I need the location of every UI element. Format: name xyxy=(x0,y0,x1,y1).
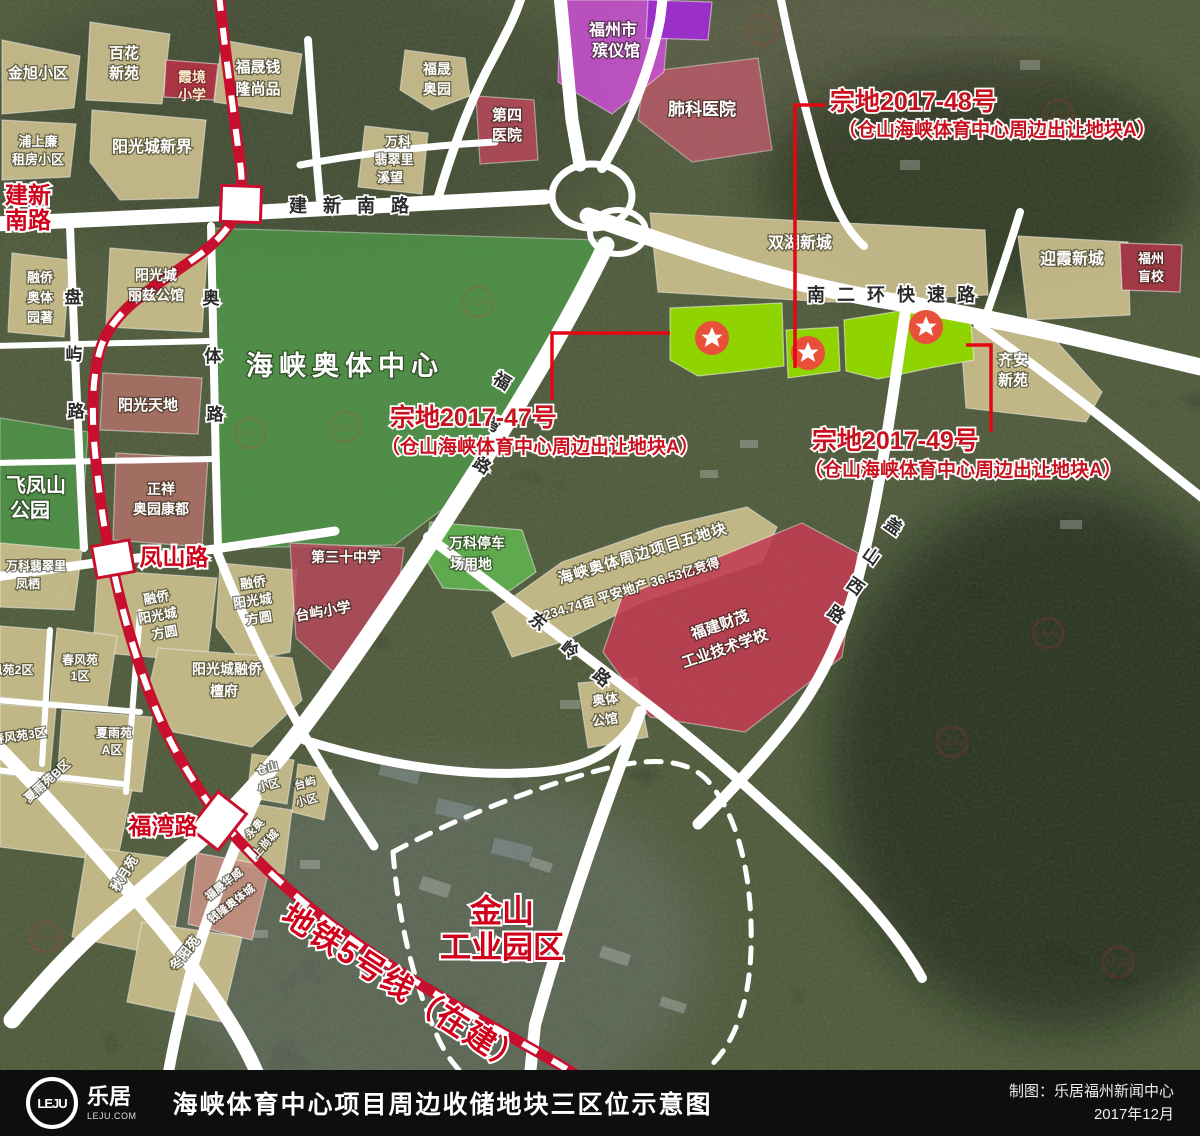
svg-text:LEJU: LEJU xyxy=(1106,957,1129,967)
svg-text:LEJU: LEJU xyxy=(750,25,773,35)
label-pushang-1: 浦上廉 xyxy=(18,134,57,149)
svg-text:LEJU: LEJU xyxy=(34,932,57,942)
label-disiyiyuan-1: 第四 xyxy=(492,106,522,124)
label-qianxinyuan-1: 齐安 xyxy=(998,351,1028,369)
road-label-jianxin-nanlu: 建新南路 xyxy=(289,195,425,216)
label-tanfu-2: 檀府 xyxy=(210,683,238,699)
label-zhengxiang-1: 正祥 xyxy=(147,481,175,497)
leju-logo-icon: LEJU xyxy=(26,1077,78,1129)
label-ygcxinjie: 阳光城新界 xyxy=(112,137,192,156)
svg-text:LEJU: LEJU xyxy=(466,297,489,307)
zongdi-49-sub: （仓山海峡体育中心周边出让地块A） xyxy=(804,458,1122,481)
label-wkfengqi-2: 凤栖 xyxy=(16,576,40,591)
brand-name: 乐居 xyxy=(87,1086,137,1108)
label-di30zhongxue: 第三十中学 xyxy=(311,549,381,565)
label-wkxiwang-1: 万科 xyxy=(384,134,411,149)
label-yangguangtiandi: 阳光天地 xyxy=(118,396,178,414)
label-wkfengqi-1: 万科翡翠里 xyxy=(5,558,66,573)
label-xiayu-a-1: 夏雨苑 xyxy=(96,725,132,740)
svg-text:LEJU: LEJU xyxy=(1046,110,1069,120)
svg-text:LEJU: LEJU xyxy=(238,428,261,438)
label-rongqiaoyuanzhu-3: 园著 xyxy=(27,310,53,325)
station-jianxin-nanlu xyxy=(220,185,261,222)
label-wkxiwang-2: 翡翠里 xyxy=(374,152,413,167)
label-baihua-2: 新苑 xyxy=(109,64,139,82)
station-label-jianxin-2: 南路 xyxy=(5,207,52,233)
label-xiajing-2: 小学 xyxy=(178,87,206,103)
zongdi-49-title: 宗地2017-49号 xyxy=(812,426,979,455)
road-label-aoti-3: 路 xyxy=(207,404,225,424)
label-jinxu: 金旭小区 xyxy=(7,64,68,82)
credit-line: 制图：乐居福州新闻中心 xyxy=(1009,1080,1174,1103)
label-zhengxiang-2: 奥园康都 xyxy=(133,501,189,517)
station-fengshanlu xyxy=(92,540,135,578)
label-fushengqld-2: 隆尚品 xyxy=(235,80,280,98)
map-canvas: LEJU LEJU LEJU LEJU LEJU LEJU LEJU LEJU … xyxy=(0,0,1200,1070)
zongdi-47-title: 宗地2017-47号 xyxy=(390,403,557,432)
zongdi-47-sub: （仓山海峡体育中心周边出让地块A） xyxy=(381,435,699,458)
zongdi-48-title: 宗地2017-48号 xyxy=(830,87,997,116)
label-chunfeng1-2: 1区 xyxy=(71,669,90,683)
label-wkxiwang-3: 溪望 xyxy=(377,170,403,185)
svg-text:LEJU: LEJU xyxy=(333,422,356,432)
label-wkparking-2: 场用地 xyxy=(450,556,492,572)
infographic-map: LEJU LEJU LEJU LEJU LEJU LEJU LEJU LEJU … xyxy=(0,0,1200,1136)
road-label-panyu-3: 路 xyxy=(68,401,86,421)
road-label-aoti-1: 奥 xyxy=(203,288,221,308)
star-marker-49 xyxy=(909,310,943,344)
label-jinshan-1: 金山 xyxy=(469,893,534,929)
label-xiajing-1: 霞境 xyxy=(178,69,206,85)
label-chunfeng1-1: 春风苑 xyxy=(61,652,98,667)
road-label-aoti-2: 体 xyxy=(205,346,223,366)
label-aoti-center: 海峡奥体中心 xyxy=(246,350,444,381)
label-chunfeng2: 春风苑2区 xyxy=(0,662,33,677)
label-jinshan-2: 工业园区 xyxy=(440,930,564,965)
svg-text:LEJU: LEJU xyxy=(1036,628,1059,638)
map-title: 海峡体育中心项目周边收储地块三区位示意图 xyxy=(173,1085,713,1121)
zongdi-48-sub: （仓山海峡体育中心周边出让地块A） xyxy=(838,118,1156,141)
road-grid-h2 xyxy=(0,459,213,463)
map-credit: 制图：乐居福州新闻中心 2017年12月 xyxy=(1009,1080,1174,1127)
star-marker-47 xyxy=(695,321,729,355)
label-lizigongguan-2: 丽兹公馆 xyxy=(128,287,184,303)
label-wkparking-1: 万科停车 xyxy=(448,535,505,551)
label-mangxiao-2: 盲校 xyxy=(1138,269,1165,284)
leju-logo: LEJU 乐居 LEJU.COM xyxy=(26,1077,137,1129)
parcel-zhengxiang xyxy=(113,453,208,547)
label-tanfu-1: 阳光城融侨 xyxy=(192,661,263,677)
station-label-jianxin-1: 建新 xyxy=(5,182,51,208)
label-feifengshan-1: 飞凤山 xyxy=(6,474,66,497)
road-label-nanerhuan: 南二环快速路 xyxy=(807,284,987,305)
label-fushengaoyuan-1: 福晟 xyxy=(422,61,451,77)
label-pushang-2: 租房小区 xyxy=(12,152,64,167)
label-xiayu-a-2: A区 xyxy=(102,743,123,757)
label-binyiguan-2: 殡仪馆 xyxy=(592,41,640,60)
station-label-fuwan: 福湾路 xyxy=(128,813,199,839)
label-shuanghu: 双湖新城 xyxy=(768,233,832,252)
credit-date: 2017年12月 xyxy=(1009,1103,1174,1126)
brand-url: LEJU.COM xyxy=(87,1111,137,1121)
label-lizigongguan-1: 阳光城 xyxy=(135,267,177,283)
label-rongqiaoyuanzhu-1: 融侨 xyxy=(27,270,54,285)
label-yingxia: 迎霞新城 xyxy=(1040,249,1104,268)
road-label-panyu-1: 盘 xyxy=(65,287,82,307)
station-label-fengshan: 凤山路 xyxy=(140,544,210,570)
label-feikeyiyuan: 肺科医院 xyxy=(668,99,736,119)
label-mangxiao-1: 福州 xyxy=(1137,251,1164,266)
label-disiyiyuan-2: 医院 xyxy=(492,126,522,144)
footer-bar: LEJU 乐居 LEJU.COM 海峡体育中心项目周边收储地块三区位示意图 制图… xyxy=(0,1070,1200,1136)
label-qianxinyuan-2: 新苑 xyxy=(998,371,1028,389)
road-label-panyu-2: 屿 xyxy=(66,345,83,364)
label-feifengshan-2: 公园 xyxy=(10,499,50,522)
label-baihua-1: 百花 xyxy=(109,44,139,62)
label-fushengqld-1: 福晟钱 xyxy=(234,58,280,76)
label-binyiguan-1: 福州市 xyxy=(588,20,637,39)
label-rongqiaoyuanzhu-2: 奥体 xyxy=(27,290,54,305)
svg-text:LEJU: LEJU xyxy=(940,737,963,747)
label-fushengaoyuan-2: 奥园 xyxy=(423,81,451,97)
leju-logo-text: LEJU xyxy=(37,1096,66,1111)
